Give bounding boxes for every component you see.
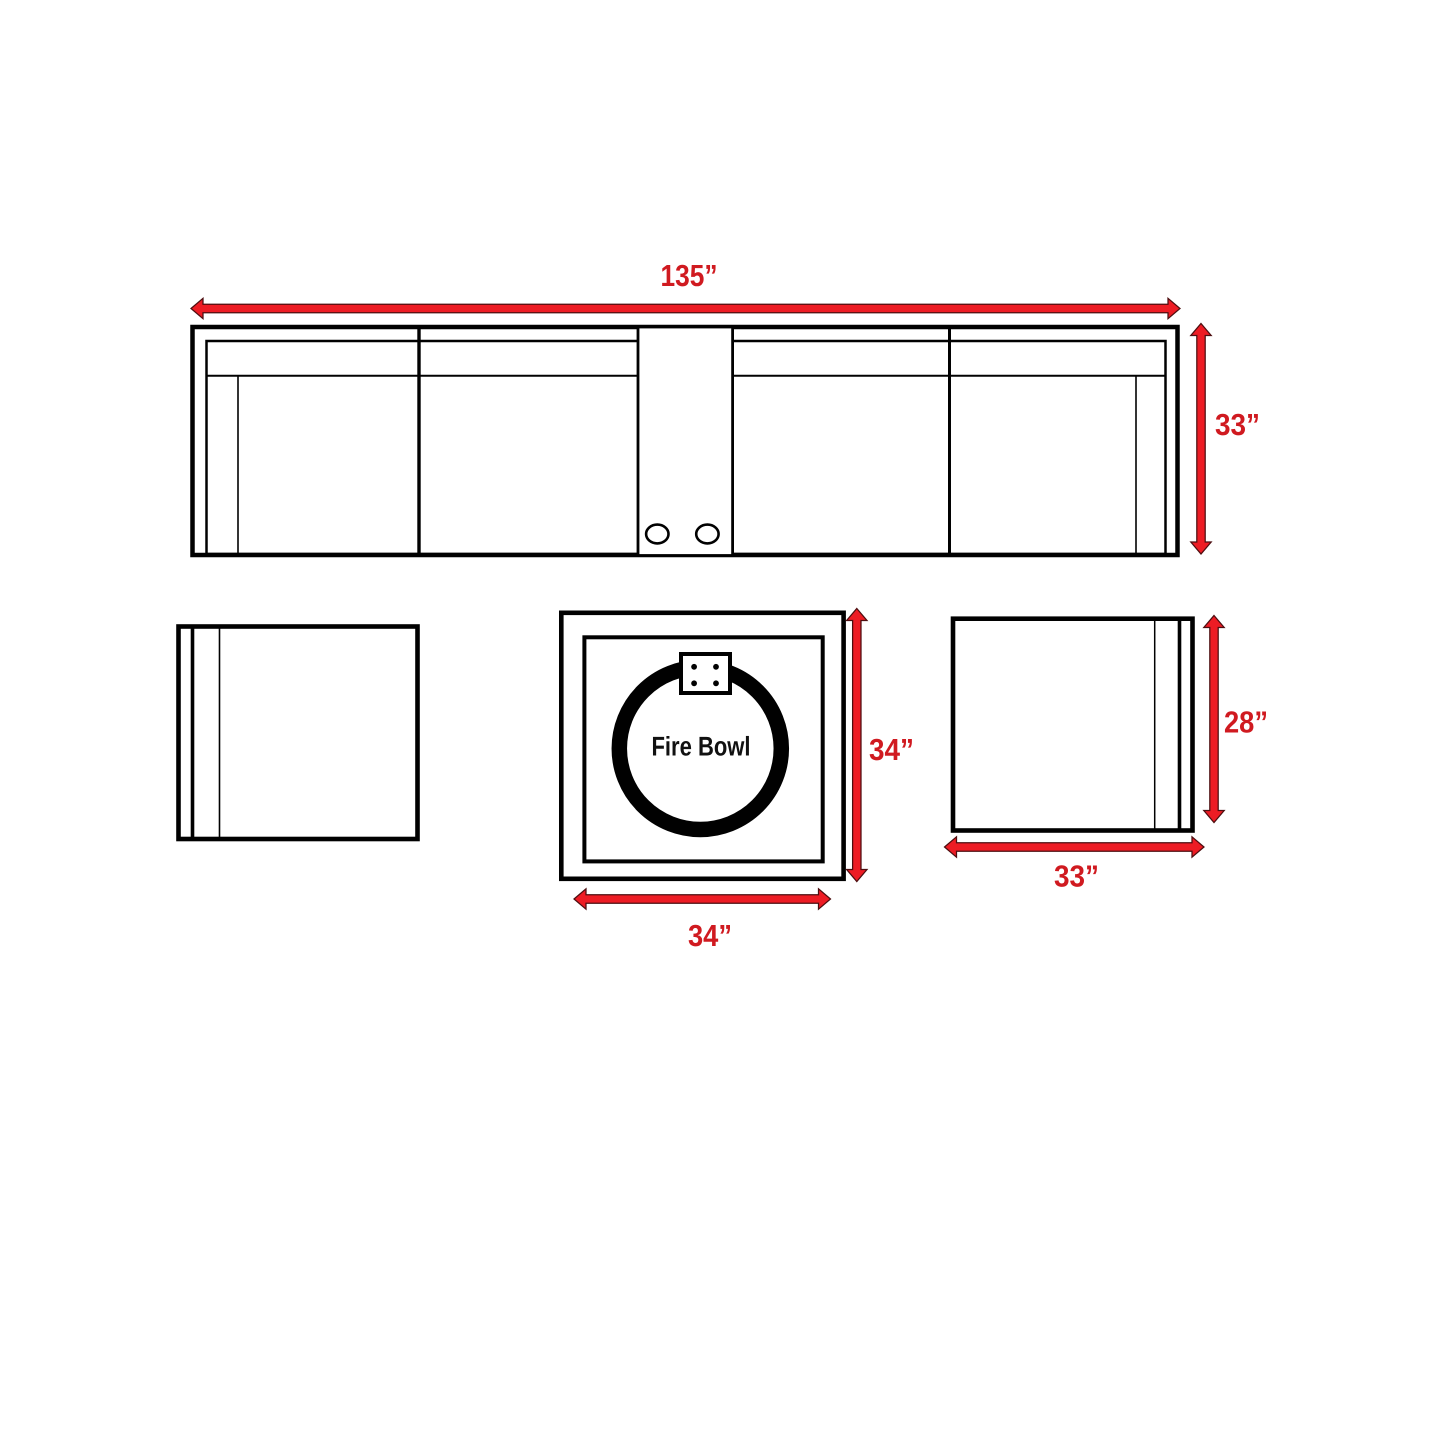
svg-text:34”: 34” xyxy=(869,733,914,767)
svg-text:135”: 135” xyxy=(661,259,718,293)
svg-text:Fire Bowl: Fire Bowl xyxy=(652,732,751,762)
svg-text:28”: 28” xyxy=(1224,706,1268,740)
svg-text:33”: 33” xyxy=(1054,860,1099,894)
svg-text:33”: 33” xyxy=(1215,408,1260,442)
svg-text:34”: 34” xyxy=(688,919,732,953)
